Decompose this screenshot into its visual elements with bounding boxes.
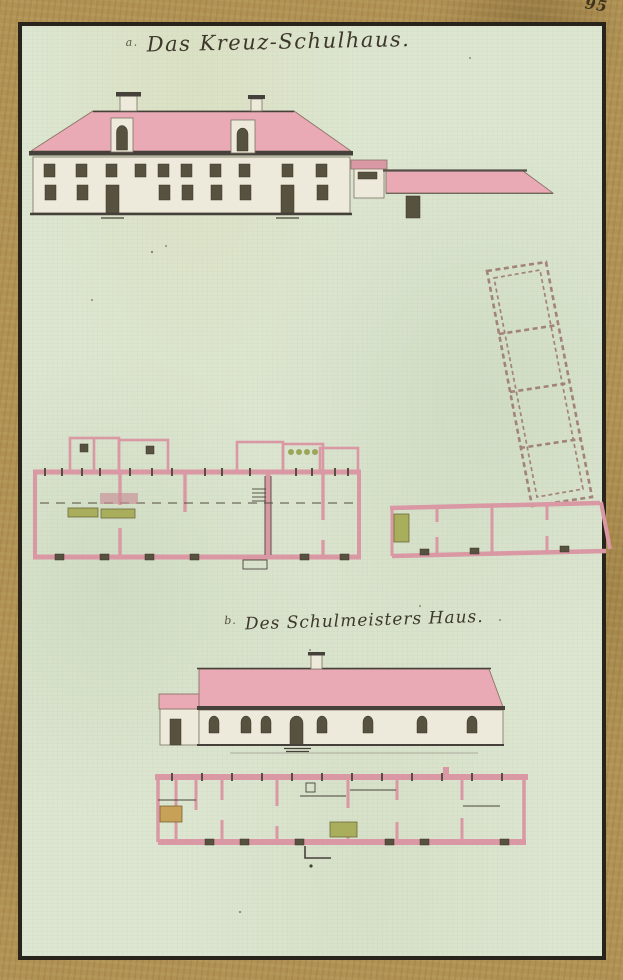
chimney-left	[116, 92, 141, 111]
upper-window-row	[44, 164, 327, 177]
wing-walls	[390, 502, 610, 556]
drawings-layer	[0, 0, 623, 980]
divider-1	[499, 325, 558, 334]
entrance-path	[305, 846, 331, 858]
entrance-door-left	[106, 185, 119, 213]
projected-wing-dashed-plan	[487, 262, 592, 506]
courtyard-wall-elevation	[351, 160, 553, 218]
left-annex	[159, 694, 199, 745]
stair-marks	[252, 489, 266, 501]
schoolmaster-house-ground-plan	[155, 767, 528, 868]
entrance-door-right	[281, 185, 294, 213]
interior-walls	[120, 472, 323, 557]
roof	[199, 669, 503, 707]
top-projecting-rooms	[70, 438, 358, 472]
entrance-porch	[243, 560, 267, 569]
wall-coping	[386, 171, 553, 193]
wing-stove	[394, 514, 409, 542]
gate-coping	[351, 160, 387, 169]
chimney-right	[248, 95, 265, 111]
ochre-stove	[160, 806, 182, 822]
divider-2	[510, 383, 569, 392]
dormer-window	[117, 126, 128, 150]
dormer-right	[231, 120, 255, 153]
annex-door	[170, 719, 181, 745]
interior-ink-details	[158, 783, 500, 806]
entrance-door	[290, 716, 303, 745]
schoolhouse-elevation	[29, 92, 353, 218]
eave-band	[29, 151, 353, 156]
hipped-roof	[31, 111, 351, 151]
ink-dot	[309, 864, 312, 867]
interior-dividers	[176, 777, 462, 842]
dormer-window	[237, 128, 248, 151]
outer-outline	[487, 262, 592, 506]
stove-bench-1	[68, 508, 98, 517]
wing-dividers	[437, 504, 547, 554]
divider-3	[520, 439, 580, 448]
scanned-manuscript-page: { "page": { "folio_number": "95", "figur…	[0, 0, 623, 980]
hatched-masonry	[100, 493, 138, 504]
dormer-left	[111, 118, 133, 152]
eave-band	[197, 706, 505, 710]
chimney	[308, 652, 325, 669]
door-steps	[284, 749, 311, 752]
schoolmaster-house-elevation	[159, 652, 505, 753]
stove-bench-2	[101, 509, 135, 518]
gate-opening	[358, 172, 377, 179]
green-stove	[330, 822, 357, 837]
annex-roof	[159, 694, 199, 709]
right-wing-ground-plan	[390, 502, 610, 556]
wall-post	[406, 196, 420, 218]
top-wall-stub	[443, 767, 449, 779]
schoolhouse-ground-plan	[33, 438, 361, 569]
